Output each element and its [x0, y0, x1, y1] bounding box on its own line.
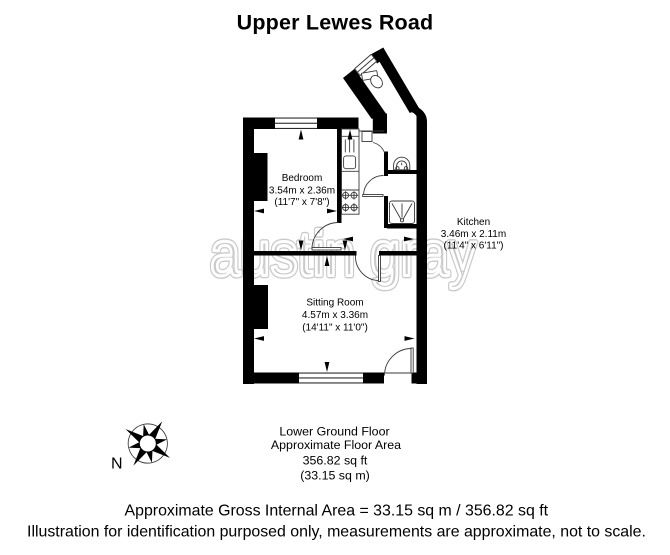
svg-text:(33.15 sq m): (33.15 sq m) [300, 469, 370, 483]
svg-text:Bedroom: Bedroom [282, 173, 323, 184]
svg-text:(14'11" x 11'0"): (14'11" x 11'0") [302, 323, 368, 334]
svg-text:Approximate Gross Internal Are: Approximate Gross Internal Area = 33.15 … [125, 502, 549, 519]
svg-text:Lower Ground Floor: Lower Ground Floor [279, 425, 389, 439]
svg-text:Illustration for identificatio: Illustration for identification purposed… [27, 524, 646, 541]
svg-text:Approximate Floor Area: Approximate Floor Area [271, 438, 401, 452]
svg-text:(11'4" x 6'11"): (11'4" x 6'11") [443, 241, 503, 252]
svg-text:(11'7" x 7'8"): (11'7" x 7'8") [274, 197, 329, 208]
svg-text:N: N [111, 456, 123, 473]
svg-text:Sitting Room: Sitting Room [306, 298, 363, 309]
svg-text:Upper Lewes Road: Upper Lewes Road [237, 11, 434, 35]
svg-text:Kitchen: Kitchen [457, 217, 490, 228]
svg-text:3.46m x 2.11m: 3.46m x 2.11m [441, 229, 506, 240]
svg-text:4.57m x 3.36m: 4.57m x 3.36m [302, 310, 368, 321]
svg-text:3.54m x 2.36m: 3.54m x 2.36m [269, 185, 335, 196]
svg-text:356.82 sq ft: 356.82 sq ft [303, 454, 368, 468]
